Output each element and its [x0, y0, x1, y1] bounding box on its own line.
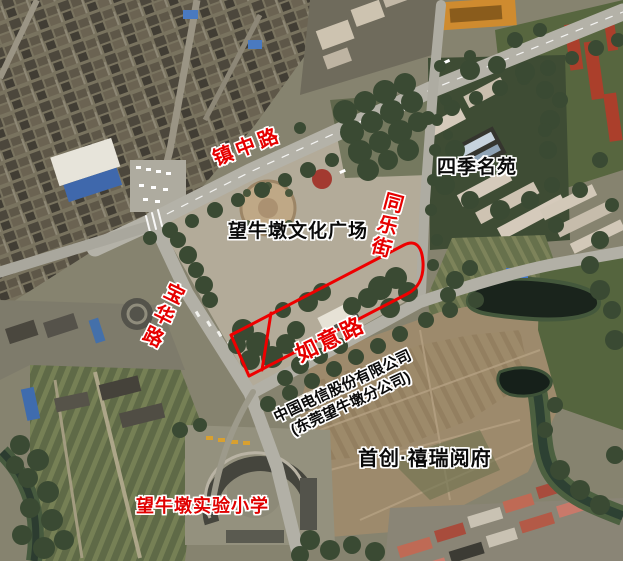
satellite-imagery [0, 0, 623, 561]
school-area [185, 425, 335, 545]
satellite-map[interactable]: 镇中路 同乐街 宝华路 如意路 四季名苑 望牛墩文化广场 中国电信股份有限公司 … [0, 0, 623, 561]
